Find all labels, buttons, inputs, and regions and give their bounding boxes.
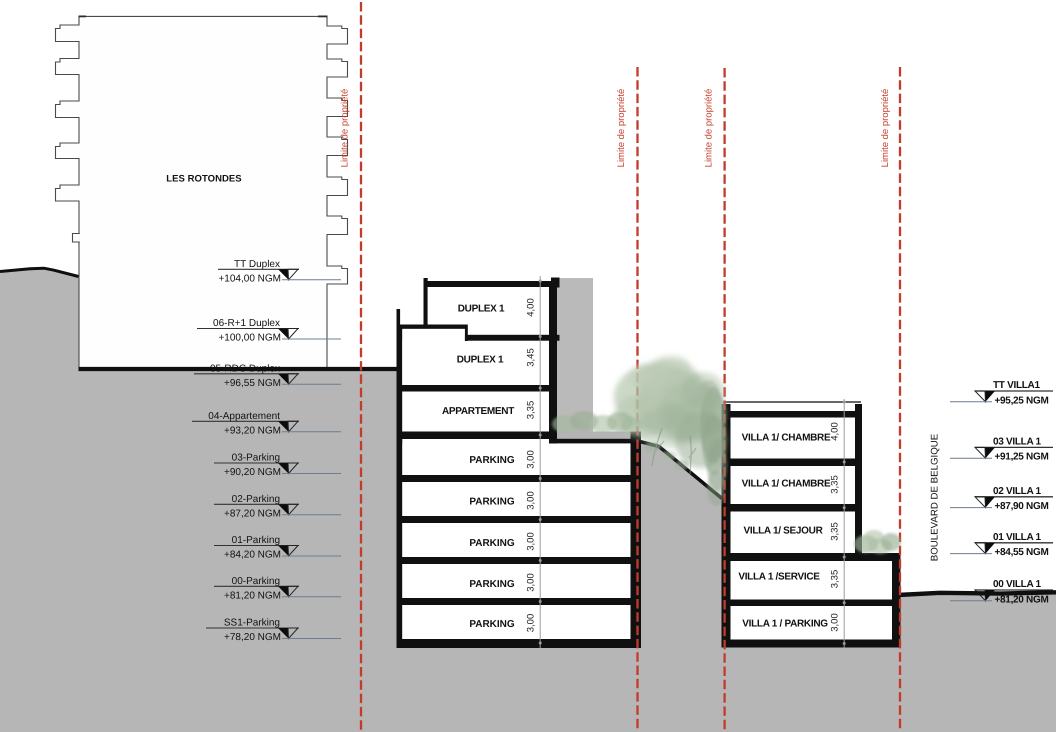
svg-text:4,00: 4,00 [830,422,841,441]
svg-text:+100,00 NGM: +100,00 NGM [218,333,281,344]
svg-text:01-Parking: 01-Parking [232,535,280,546]
svg-text:3,00: 3,00 [526,614,537,633]
svg-text:PARKING: PARKING [469,538,515,549]
svg-text:06-R+1 Duplex: 06-R+1 Duplex [213,318,280,329]
svg-text:TT Duplex: TT Duplex [234,259,280,270]
svg-text:03 VILLA 1: 03 VILLA 1 [993,436,1041,447]
svg-text:SS1-Parking: SS1-Parking [224,618,280,629]
svg-text:+87,90 NGM: +87,90 NGM [995,501,1049,512]
svg-text:PARKING: PARKING [469,619,515,630]
svg-text:Limite de propriété: Limite de propriété [880,89,891,168]
svg-text:+81,20 NGM: +81,20 NGM [224,590,281,601]
svg-text:02-Parking: 02-Parking [232,494,280,505]
svg-text:3,35: 3,35 [526,401,537,420]
svg-text:VILLA 1/ CHAMBRE: VILLA 1/ CHAMBRE [742,433,831,444]
svg-text:4,00: 4,00 [526,298,537,317]
svg-text:+84,20 NGM: +84,20 NGM [224,550,281,561]
svg-text:Limite de propriété: Limite de propriété [704,89,715,168]
svg-text:02 VILLA 1: 02 VILLA 1 [993,486,1041,497]
svg-text:PARKING: PARKING [469,455,515,466]
svg-text:05-RDC Duplex: 05-RDC Duplex [210,363,280,374]
svg-text:3,00: 3,00 [526,491,537,510]
svg-text:3,35: 3,35 [830,475,841,494]
svg-text:APPARTEMENT: APPARTEMENT [442,406,514,417]
svg-text:DUPLEX 1: DUPLEX 1 [457,355,504,366]
svg-text:3,00: 3,00 [526,532,537,551]
svg-text:BOULEVARD DE BELGIQUE: BOULEVARD DE BELGIQUE [930,433,941,561]
svg-text:00-Parking: 00-Parking [232,576,280,587]
svg-text:+81,20 NGM: +81,20 NGM [995,594,1049,605]
svg-text:3,35: 3,35 [830,522,841,541]
svg-text:04-Appartement: 04-Appartement [208,411,280,422]
svg-text:VILLA 1 / PARKING: VILLA 1 / PARKING [742,619,828,630]
svg-text:VILLA 1 /SERVICE: VILLA 1 /SERVICE [738,572,820,583]
svg-text:3,35: 3,35 [830,570,841,589]
svg-text:+93,20 NGM: +93,20 NGM [224,425,281,436]
svg-text:+84,55 NGM: +84,55 NGM [995,547,1049,558]
svg-text:+104,00 NGM: +104,00 NGM [218,273,281,284]
svg-text:+90,20 NGM: +90,20 NGM [224,467,281,478]
svg-text:PARKING: PARKING [469,579,515,590]
svg-text:01 VILLA 1: 01 VILLA 1 [993,532,1041,543]
svg-text:+91,25 NGM: +91,25 NGM [995,452,1049,463]
svg-text:PARKING: PARKING [469,497,515,508]
svg-text:+96,55 NGM: +96,55 NGM [224,378,281,389]
svg-text:LES ROTONDES: LES ROTONDES [166,174,241,185]
svg-text:3,45: 3,45 [526,348,537,367]
svg-text:3,00: 3,00 [830,613,841,632]
svg-text:+95,25 NGM: +95,25 NGM [995,395,1049,406]
svg-text:DUPLEX 1: DUPLEX 1 [458,304,505,315]
svg-text:Limite de propriété: Limite de propriété [616,89,627,168]
svg-text:00 VILLA 1: 00 VILLA 1 [993,579,1041,590]
svg-text:TT VILLA1: TT VILLA1 [993,380,1040,391]
svg-text:VILLA 1/ SEJOUR: VILLA 1/ SEJOUR [743,526,823,537]
svg-text:VILLA 1/ CHAMBRE: VILLA 1/ CHAMBRE [742,479,831,490]
svg-text:3,00: 3,00 [526,450,537,469]
svg-text:03-Parking: 03-Parking [232,453,280,464]
svg-text:3,00: 3,00 [526,573,537,592]
svg-text:Limite de propriété: Limite de propriété [340,89,351,168]
svg-text:+87,20 NGM: +87,20 NGM [224,508,281,519]
svg-text:+78,20 NGM: +78,20 NGM [224,632,281,643]
